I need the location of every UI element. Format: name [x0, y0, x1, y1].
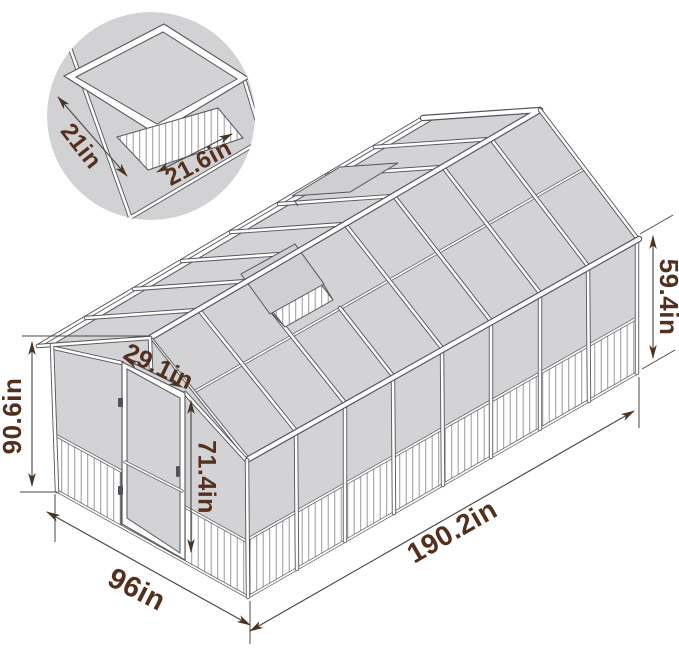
dim-door-height-label: 71.4in — [192, 440, 220, 514]
greenhouse-dimension-diagram: 90.6in 59.4in 29.1in 71.4in 190.2in 96in — [0, 0, 679, 649]
dim-wall-height: 59.4in — [640, 215, 679, 369]
door-hinge-top — [118, 398, 123, 407]
dim-total-height-label: 90.6in — [0, 378, 27, 455]
dim-base-length-label: 190.2in — [402, 493, 503, 569]
door-handle — [176, 466, 180, 477]
door-hinge-bottom — [118, 486, 123, 495]
dim-wall-height-label: 59.4in — [654, 259, 679, 336]
vent-detail-inset: 21in 21.6in — [47, 12, 292, 235]
diagram-canvas: 90.6in 59.4in 29.1in 71.4in 190.2in 96in — [0, 0, 679, 649]
dim-base-width-label: 96in — [103, 562, 171, 618]
